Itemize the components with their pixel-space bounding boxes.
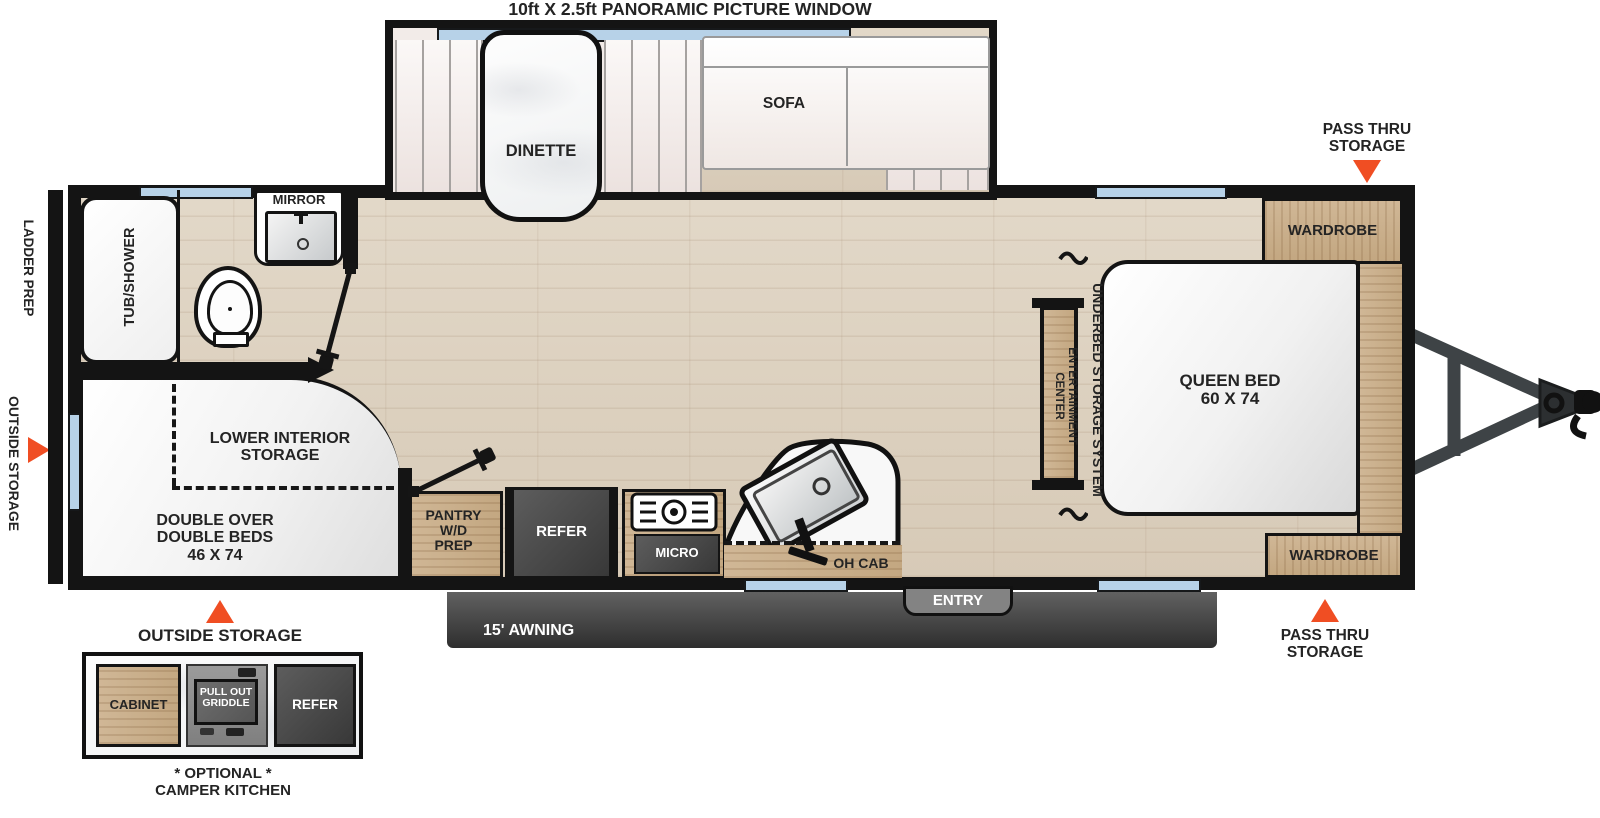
queen-bed: QUEEN BED 60 X 74 — [1100, 260, 1360, 516]
pass-thru-bottom-arrow — [1311, 599, 1339, 622]
rear-bumper — [48, 190, 63, 584]
dinette-bench-right — [604, 40, 702, 192]
outside-storage-side-arrow — [28, 437, 50, 463]
lower-interior-storage-label: LOWER INTERIOR STORAGE — [170, 430, 390, 465]
window-bottom-bedroom — [1097, 579, 1201, 592]
sofa-label: SOFA — [724, 96, 844, 113]
queen-bed-label: QUEEN BED 60 X 74 — [1104, 372, 1356, 409]
mirror-label: MIRROR — [257, 193, 341, 207]
toilet-bowl — [207, 280, 253, 336]
entry-label: ENTRY — [906, 593, 1010, 609]
awning-bar: 15' AWNING — [447, 592, 1217, 648]
bath-door-post — [343, 185, 358, 269]
wardrobe-rear-label: WARDROBE — [1268, 548, 1400, 564]
camper-kitchen-refer: REFER — [274, 664, 356, 747]
bath-divider-wall — [70, 362, 310, 378]
pass-thru-bottom-label: PASS THRU STORAGE — [1245, 628, 1405, 661]
outside-storage-bottom-arrow — [206, 600, 234, 623]
ladder-prep-label: LADDER PREP — [20, 198, 36, 338]
entry-step: ENTRY — [903, 586, 1013, 616]
pantry-label: PANTRY W/D PREP — [407, 508, 500, 553]
break-squiggle-top — [1058, 250, 1088, 266]
dinette-table: DINETTE — [480, 30, 602, 222]
micro-label: MICRO — [636, 546, 718, 560]
break-squiggle-bottom — [1058, 506, 1088, 522]
optional-label: * OPTIONAL * — [93, 766, 353, 782]
outside-storage-side-label: OUTSIDE STORAGE — [6, 362, 22, 565]
floorplan: 10ft X 2.5ft PANORAMIC PICTURE WINDOW 15… — [0, 0, 1600, 818]
cooktop-grate-icon — [630, 492, 718, 532]
oh-shelf — [1357, 264, 1402, 533]
bathroom-door-hinge — [345, 263, 356, 274]
hitch-icon — [1402, 318, 1600, 486]
outside-storage-bottom-label: OUTSIDE STORAGE — [90, 627, 350, 645]
vanity: MIRROR — [254, 190, 344, 266]
page-title: 10ft X 2.5ft PANORAMIC PICTURE WINDOW — [340, 0, 1040, 19]
wardrobe-front-label: WARDROBE — [1265, 223, 1400, 239]
bath-inner-wall — [177, 190, 180, 364]
camper-kitchen-box: CABINET PULL OUT GRIDDLE REFER — [82, 652, 363, 759]
pass-thru-top-label: PASS THRU STORAGE — [1287, 122, 1447, 155]
tub-shower-label: TUB/SHOWER — [122, 202, 138, 352]
cabinet-label: CABINET — [99, 698, 178, 712]
pantry: PANTRY W/D PREP — [404, 491, 503, 579]
sofa-cushion-divider — [846, 66, 848, 166]
pass-thru-top-arrow — [1353, 160, 1381, 183]
dinette-bench-left — [395, 40, 483, 192]
microwave: MICRO — [634, 534, 720, 574]
underbed-storage-label: UNDERBED STORAGE SYSTEM — [1090, 262, 1106, 518]
wardrobe-front: WARDROBE — [1262, 198, 1403, 264]
cooktop — [630, 492, 718, 532]
lower-storage-dash-horizontal — [172, 486, 394, 490]
toilet-base — [213, 332, 249, 347]
camper-kitchen-cabinet: CABINET — [96, 664, 181, 747]
griddle-label: PULL OUT GRIDDLE — [194, 687, 258, 710]
awning-label: 15' AWNING — [483, 622, 574, 639]
refrigerator: REFER — [505, 487, 618, 579]
vanity-sink — [265, 211, 337, 263]
window-bottom-kitchen — [744, 579, 848, 592]
entertainment-center-label: ENTERTAINMENT CENTER — [1050, 314, 1078, 478]
entry-door-hinge — [408, 486, 419, 497]
sofa: SOFA — [702, 36, 990, 170]
double-beds-label: DOUBLE OVER DOUBLE BEDS 46 X 74 — [110, 512, 320, 564]
window-top-right — [1095, 186, 1227, 199]
camper-kitchen-griddle: PULL OUT GRIDDLE — [186, 664, 268, 747]
dinette-label: DINETTE — [485, 143, 597, 161]
refer-label: REFER — [514, 524, 609, 540]
toilet — [194, 266, 262, 348]
camper-kitchen-label: CAMPER KITCHEN — [93, 783, 353, 799]
oh-cab-label: OH CAB — [826, 556, 896, 571]
camper-kitchen-refer-label: REFER — [277, 698, 353, 713]
wardrobe-rear: WARDROBE — [1265, 533, 1403, 578]
